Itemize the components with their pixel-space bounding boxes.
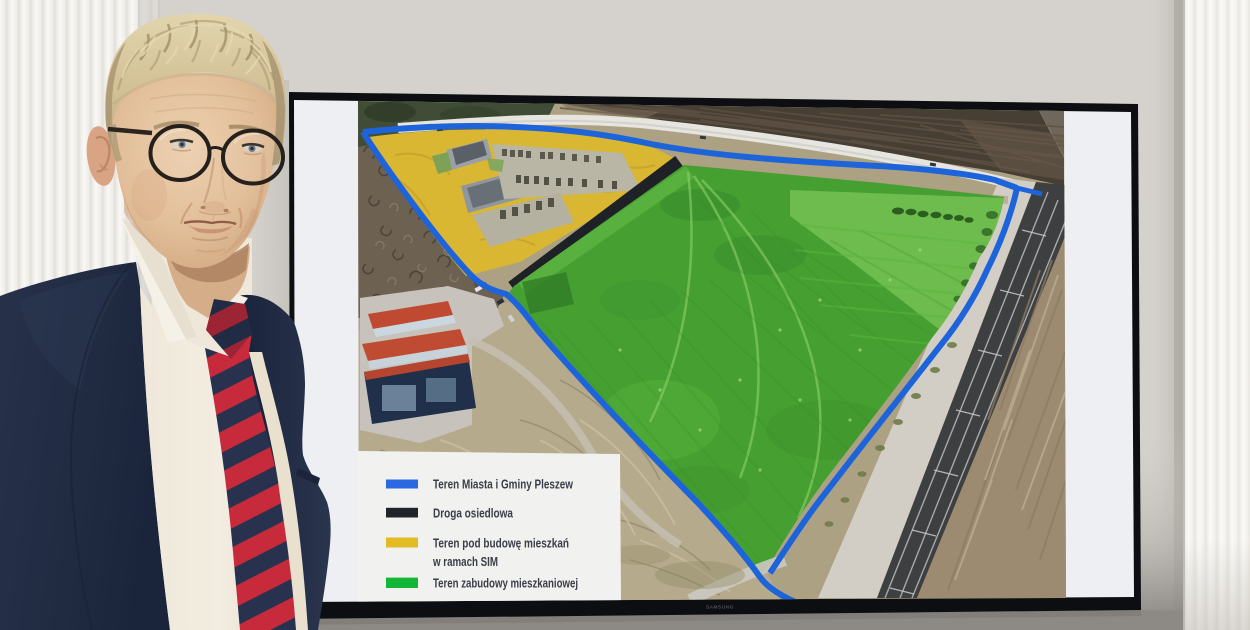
- svg-text:Teren zabudowy mieszkaniowej: Teren zabudowy mieszkaniowej: [433, 577, 578, 591]
- svg-text:w ramach SIM: w ramach SIM: [432, 555, 498, 569]
- svg-text:Teren Miasta i Gminy Pleszew: Teren Miasta i Gminy Pleszew: [433, 478, 573, 492]
- svg-text:Teren pod budowę mieszkań: Teren pod budowę mieszkań: [433, 537, 569, 551]
- svg-text:SAMSUNG: SAMSUNG: [706, 605, 734, 611]
- svg-text:Droga osiedlowa: Droga osiedlowa: [433, 507, 514, 521]
